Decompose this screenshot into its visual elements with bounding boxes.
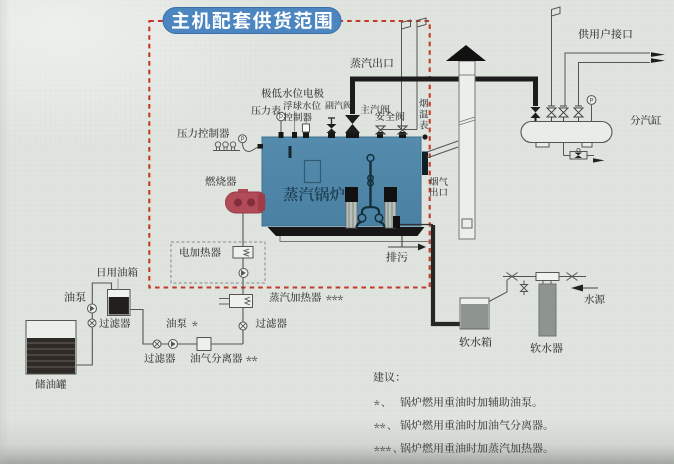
svg-text:P: P (589, 99, 593, 105)
svg-text:P: P (240, 137, 244, 143)
svg-text:P: P (279, 115, 283, 121)
